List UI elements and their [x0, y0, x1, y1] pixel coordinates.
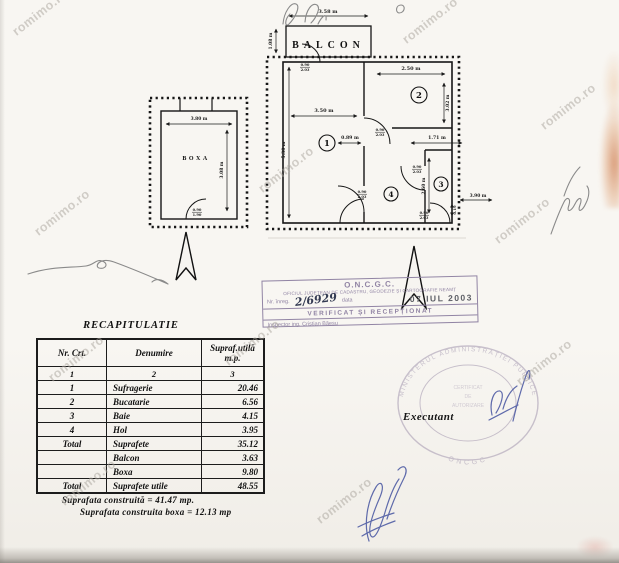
svg-text:0.90: 0.90 [358, 190, 367, 194]
table-cell: Sufragerie [107, 381, 202, 395]
svg-text:0.90: 0.90 [376, 128, 385, 132]
stamp-date: 07 IUL 2003 [410, 292, 473, 304]
boxa-top-notch [180, 98, 212, 111]
table-row: 2Bucatarie6.56 [37, 395, 264, 409]
dim-label: 1.71 m [428, 135, 446, 141]
main-floor-plan: BALCON 1 2 3 4 [267, 9, 492, 229]
table-title: RECAPITULATIE [58, 320, 204, 331]
blue-ink-signatures [358, 371, 530, 541]
room-number-1: 1 [319, 135, 335, 151]
table-cell: Baie [107, 409, 202, 423]
table-cell: 9.80 [202, 465, 265, 479]
table-cell: 3 [37, 409, 107, 423]
table-row: TotalSuprafete utile48.55 [37, 479, 264, 494]
column-index: 2 [107, 367, 202, 381]
dim-label: 3.80 m [191, 117, 208, 122]
round-stamp-bottom-text: ONCGC [447, 456, 489, 467]
column-header: Nr. Crt. [37, 339, 107, 367]
interior-walls [364, 62, 452, 223]
svg-text:ONCGC: ONCGC [447, 456, 489, 467]
room-number-3: 3 [434, 177, 448, 191]
table-cell: Total [37, 479, 107, 494]
table-cell: Total [37, 437, 107, 451]
column-index: 1 [37, 367, 107, 381]
dim-label: 3.08 m [220, 161, 225, 178]
svg-text:0.90: 0.90 [193, 208, 202, 212]
table-cell [37, 465, 107, 479]
table-row: TotalSuprafete35.12 [37, 437, 264, 451]
built-area-note: Suprafata construită = 41.47 mp. [62, 495, 194, 505]
svg-text:0.90: 0.90 [301, 63, 310, 67]
north-arrow-icon [176, 232, 196, 280]
table-cell: Hol [107, 423, 202, 437]
stamp-nr-label: Nr. înreg. [267, 299, 290, 306]
round-stamp-inner-line: DE [465, 394, 473, 400]
table-cell: Suprafete utile [107, 479, 202, 494]
svg-text:0.90: 0.90 [420, 211, 429, 215]
table-cell: 6.56 [202, 395, 265, 409]
dim-label: 1.08 m [269, 32, 274, 49]
table-cell: 1 [37, 381, 107, 395]
dim-label: 0.89 m [341, 135, 359, 141]
svg-text:2.03: 2.03 [413, 170, 422, 174]
registration-stamp: O.N.C.G.C. OFICIUL JUDEȚEAN DE CADASTRU,… [261, 275, 478, 327]
boxa-floor-plan: BOXA 3.80 m 3.08 m 0.90 1.90 [150, 98, 247, 227]
recap-table: Nr. Crt. Denumire Supraf.utilă m.p. 1 2 … [36, 338, 265, 494]
svg-text:1: 1 [324, 139, 330, 149]
dim-label: 3.02 m [446, 94, 451, 111]
table-cell: Balcon [107, 451, 202, 465]
table-cell: 3.95 [202, 423, 265, 437]
dim-label: 3.58 m [318, 9, 338, 15]
boxa-label: BOXA [182, 156, 209, 162]
svg-text:4: 4 [388, 190, 393, 199]
svg-text:2.03: 2.03 [301, 68, 310, 72]
table-cell: 2 [37, 395, 107, 409]
table-row: Boxa9.80 [37, 465, 264, 479]
svg-text:2.03: 2.03 [358, 195, 367, 199]
column-header-line2: m.p. [202, 353, 263, 363]
room-number-4: 4 [384, 187, 398, 201]
svg-text:0.90: 0.90 [413, 165, 422, 169]
table-row: Balcon3.63 [37, 451, 264, 465]
table-cell [37, 451, 107, 465]
dim-label: 2.60 m [422, 177, 427, 194]
table-cell: 3.63 [202, 451, 265, 465]
table-cell: 20.46 [202, 381, 265, 395]
dim-label: 0.19 [452, 205, 457, 215]
round-stamp-inner-line: AUTORIZARE [452, 403, 485, 409]
boxa-area-note: Suprafata construita boxa = 12.13 mp [80, 507, 231, 517]
table-cell: 4.15 [202, 409, 265, 423]
table-row: 3Baie4.15 [37, 409, 264, 423]
column-header-line1: Supraf.utilă [202, 343, 263, 353]
table-cell: Boxa [107, 465, 202, 479]
table-cell: Bucatarie [107, 395, 202, 409]
door-size-label: 0.90 1.90 [192, 208, 202, 217]
recap-table-head: Nr. Crt. Denumire Supraf.utilă m.p. 1 2 … [37, 339, 264, 381]
round-stamp-inner-line: CERTIFICAT [454, 385, 483, 391]
table-row: 1Sufragerie20.46 [37, 381, 264, 395]
scanned-document-page: BALCON 1 2 3 4 [0, 0, 619, 563]
room-number-2: 2 [411, 87, 427, 103]
apartment-outline [283, 62, 452, 223]
stamp-data-label: data [342, 297, 353, 303]
table-cell: 35.12 [202, 437, 265, 451]
svg-text:2: 2 [416, 91, 422, 101]
column-index: 3 [202, 367, 265, 381]
table-cell: Suprafete [107, 437, 202, 451]
dim-label: 5.30 m [282, 141, 287, 158]
svg-text:1.90: 1.90 [193, 213, 202, 217]
table-cell: 4 [37, 423, 107, 437]
recap-table-body: 1Sufragerie20.462Bucatarie6.563Baie4.154… [37, 381, 264, 494]
table-cell: 48.55 [202, 479, 265, 494]
executant-label: Executant [403, 411, 454, 423]
column-header: Supraf.utilă m.p. [202, 339, 265, 367]
dim-label: 2.50 m [401, 66, 421, 72]
svg-text:2.03: 2.03 [420, 216, 429, 220]
svg-text:3: 3 [438, 180, 443, 189]
table-row: 4Hol3.95 [37, 423, 264, 437]
dim-label: 3.50 m [314, 108, 334, 114]
column-header: Denumire [107, 339, 202, 367]
boxa-outline [161, 111, 237, 219]
balcony-label: BALCON [292, 40, 365, 51]
svg-text:2.03: 2.03 [376, 133, 385, 137]
dim-label: 3.90 m [470, 194, 487, 199]
